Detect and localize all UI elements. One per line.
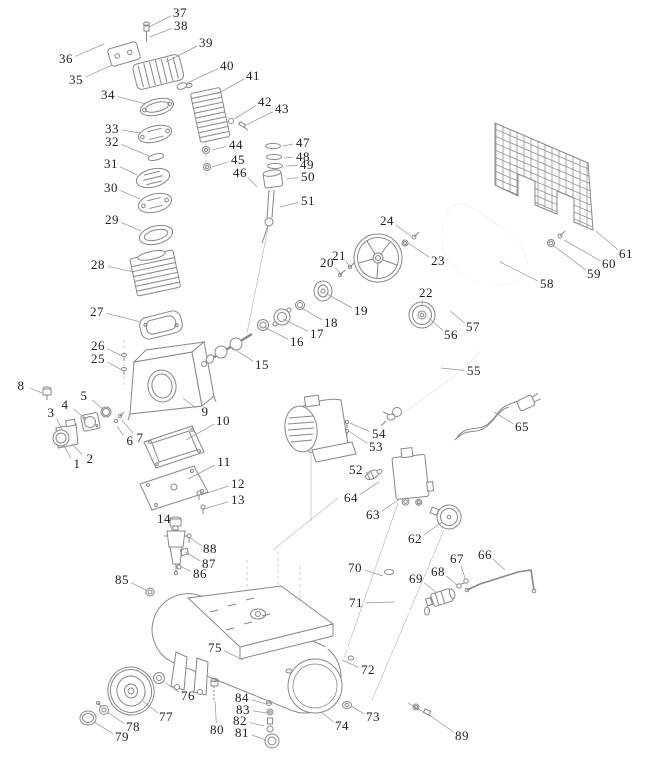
part-label-66: 66	[478, 548, 492, 561]
part-label-54: 54	[372, 427, 386, 440]
part-label-88: 88	[203, 542, 217, 555]
part-label-1: 1	[74, 457, 81, 470]
part-label-77: 77	[159, 710, 173, 723]
part-label-27: 27	[90, 305, 104, 318]
parts-diagram: 1234567891011121314151617181920212223242…	[0, 0, 656, 768]
part-label-9: 9	[202, 405, 209, 418]
part-label-89: 89	[455, 729, 469, 742]
part-label-6: 6	[127, 434, 134, 447]
part-label-22: 22	[419, 286, 433, 299]
part-label-85: 85	[115, 573, 129, 586]
part-label-35: 35	[69, 73, 83, 86]
part-label-57: 57	[466, 320, 480, 333]
part-label-19: 19	[354, 304, 368, 317]
part-label-30: 30	[104, 181, 118, 194]
part-label-61: 61	[619, 247, 633, 260]
part-label-71: 71	[349, 596, 363, 609]
part-label-46: 46	[233, 166, 247, 179]
part-label-58: 58	[540, 277, 554, 290]
part-label-24: 24	[380, 214, 394, 227]
part-label-28: 28	[91, 258, 105, 271]
part-label-80: 80	[210, 723, 224, 736]
part-label-50: 50	[301, 170, 315, 183]
part-label-40: 40	[220, 59, 234, 72]
part-label-25: 25	[91, 352, 105, 365]
part-label-7: 7	[137, 431, 144, 444]
part-label-36: 36	[59, 52, 73, 65]
part-label-29: 29	[105, 213, 119, 226]
part-label-73: 73	[366, 710, 380, 723]
part-label-5: 5	[81, 389, 88, 402]
part-label-64: 64	[344, 491, 358, 504]
part-label-55: 55	[467, 364, 481, 377]
part-label-72: 72	[361, 663, 375, 676]
part-label-74: 74	[335, 719, 349, 732]
part-label-2: 2	[87, 452, 94, 465]
part-label-4: 4	[62, 398, 69, 411]
part-label-38: 38	[174, 19, 188, 32]
part-label-79: 79	[115, 730, 129, 743]
part-label-69: 69	[409, 572, 423, 585]
part-label-12: 12	[231, 477, 245, 490]
part-label-70: 70	[348, 561, 362, 574]
part-label-53: 53	[369, 440, 383, 453]
part-label-31: 31	[104, 157, 118, 170]
part-label-18: 18	[324, 316, 338, 329]
part-label-3: 3	[48, 406, 55, 419]
part-label-17: 17	[310, 327, 324, 340]
part-label-16: 16	[290, 335, 304, 348]
part-label-26: 26	[91, 339, 105, 352]
part-label-65: 65	[515, 420, 529, 433]
part-label-68: 68	[431, 565, 445, 578]
part-label-44: 44	[229, 138, 243, 151]
part-label-67: 67	[450, 552, 464, 565]
part-label-32: 32	[105, 135, 119, 148]
part-label-23: 23	[431, 254, 445, 267]
part-label-43: 43	[275, 102, 289, 115]
part-label-87: 87	[202, 557, 216, 570]
part-label-41: 41	[246, 69, 260, 82]
part-label-84: 84	[235, 691, 249, 704]
part-label-52: 52	[349, 463, 363, 476]
part-label-42: 42	[258, 95, 272, 108]
part-label-33: 33	[105, 122, 119, 135]
part-label-34: 34	[101, 88, 115, 101]
part-label-59: 59	[587, 267, 601, 280]
part-label-51: 51	[301, 194, 315, 207]
part-label-8: 8	[18, 379, 25, 392]
part-label-39: 39	[199, 36, 213, 49]
part-label-21: 21	[332, 249, 346, 262]
part-label-63: 63	[366, 508, 380, 521]
part-label-13: 13	[231, 493, 245, 506]
part-label-11: 11	[217, 455, 231, 468]
part-label-76: 76	[181, 689, 195, 702]
part-label-14: 14	[157, 512, 171, 525]
part-label-62: 62	[408, 532, 422, 545]
part-label-56: 56	[444, 328, 458, 341]
part-label-60: 60	[602, 257, 616, 270]
part-label-10: 10	[216, 414, 230, 427]
part-label-15: 15	[255, 358, 269, 371]
label-layer: 1234567891011121314151617181920212223242…	[0, 0, 656, 768]
part-label-75: 75	[208, 641, 222, 654]
part-label-47: 47	[296, 136, 310, 149]
